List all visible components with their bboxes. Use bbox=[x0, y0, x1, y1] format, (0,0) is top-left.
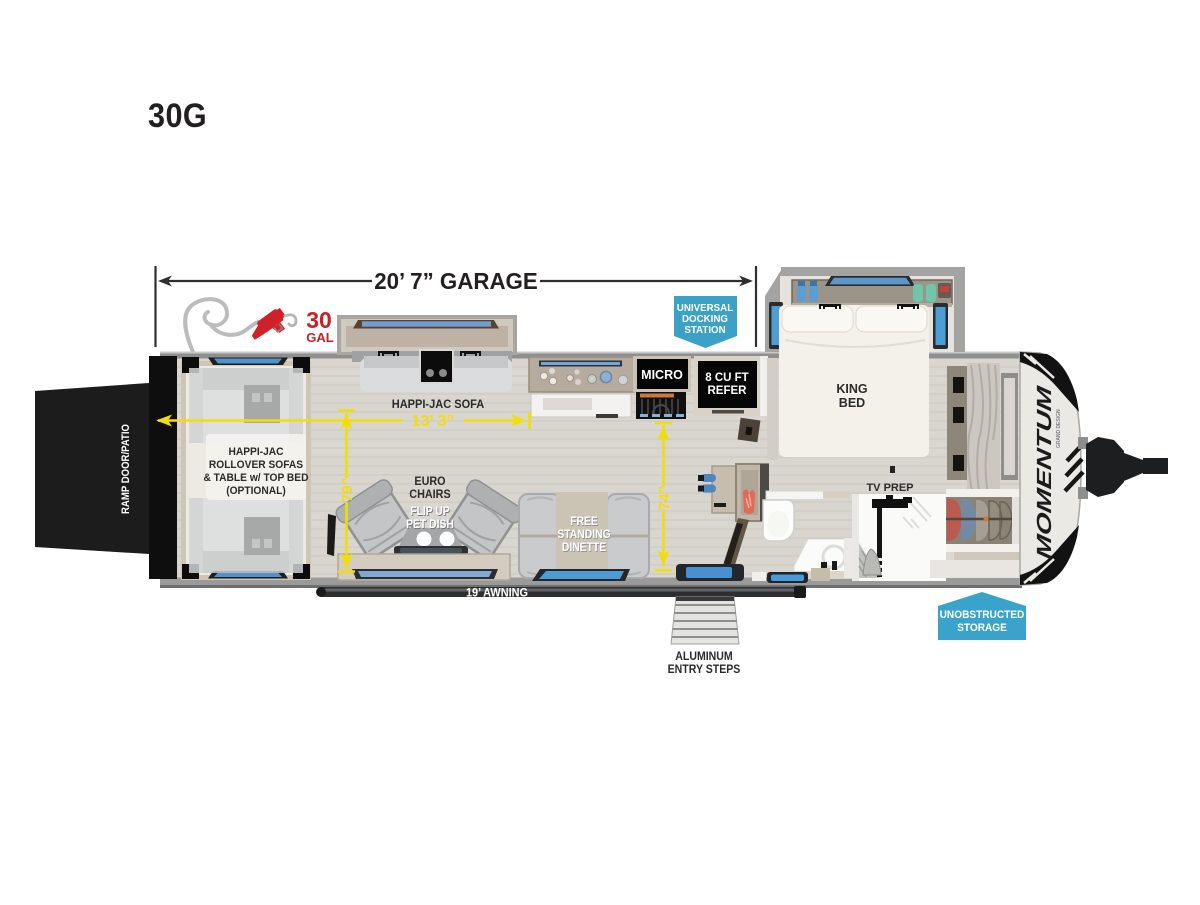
svg-text:HAPPI-JAC: HAPPI-JAC bbox=[228, 446, 283, 458]
svg-text:19’ AWNING: 19’ AWNING bbox=[466, 587, 528, 599]
svg-text:ROLLOVER SOFAS: ROLLOVER SOFAS bbox=[209, 459, 303, 471]
svg-text:& TABLE w/ TOP BED: & TABLE w/ TOP BED bbox=[203, 472, 308, 484]
svg-text:CHAIRS: CHAIRS bbox=[409, 489, 451, 502]
svg-text:STATION: STATION bbox=[684, 325, 725, 336]
svg-text:30G: 30G bbox=[148, 97, 207, 135]
svg-text:TV PREP: TV PREP bbox=[866, 482, 913, 494]
svg-text:MOMENTUM: MOMENTUM bbox=[1033, 384, 1056, 561]
svg-text:DOCKING: DOCKING bbox=[682, 314, 728, 325]
svg-text:(OPTIONAL): (OPTIONAL) bbox=[226, 485, 286, 497]
svg-text:FREE: FREE bbox=[570, 516, 598, 529]
svg-text:8 CU FT: 8 CU FT bbox=[705, 372, 748, 384]
svg-text:GRAND DESIGN: GRAND DESIGN bbox=[1056, 409, 1062, 448]
svg-text:FLIP UP: FLIP UP bbox=[410, 506, 449, 519]
svg-text:BED: BED bbox=[839, 396, 865, 410]
svg-text:EURO: EURO bbox=[414, 476, 445, 489]
svg-text:ALUMINUM: ALUMINUM bbox=[675, 650, 732, 663]
svg-text:KING: KING bbox=[836, 382, 867, 396]
svg-text:PET DISH: PET DISH bbox=[406, 519, 454, 532]
svg-text:79”: 79” bbox=[339, 478, 356, 502]
svg-text:13’ 3”: 13’ 3” bbox=[412, 413, 455, 430]
svg-text:74”: 74” bbox=[656, 486, 673, 510]
svg-text:UNIVERSAL: UNIVERSAL bbox=[677, 303, 733, 314]
svg-text:DINETTE: DINETTE bbox=[562, 542, 606, 555]
svg-text:REFER: REFER bbox=[708, 385, 748, 397]
svg-text:ENTRY STEPS: ENTRY STEPS bbox=[668, 663, 741, 676]
svg-text:STANDING: STANDING bbox=[557, 529, 610, 542]
svg-text:20’ 7” GARAGE: 20’ 7” GARAGE bbox=[374, 268, 538, 294]
svg-text:GAL: GAL bbox=[306, 330, 334, 345]
svg-text:UNOBSTRUCTED: UNOBSTRUCTED bbox=[940, 609, 1025, 621]
svg-text:STORAGE: STORAGE bbox=[957, 622, 1007, 634]
svg-text:MICRO: MICRO bbox=[641, 368, 683, 382]
svg-text:RAMP DOOR/PATIO: RAMP DOOR/PATIO bbox=[120, 424, 132, 514]
svg-text:HAPPI-JAC SOFA: HAPPI-JAC SOFA bbox=[392, 399, 485, 411]
